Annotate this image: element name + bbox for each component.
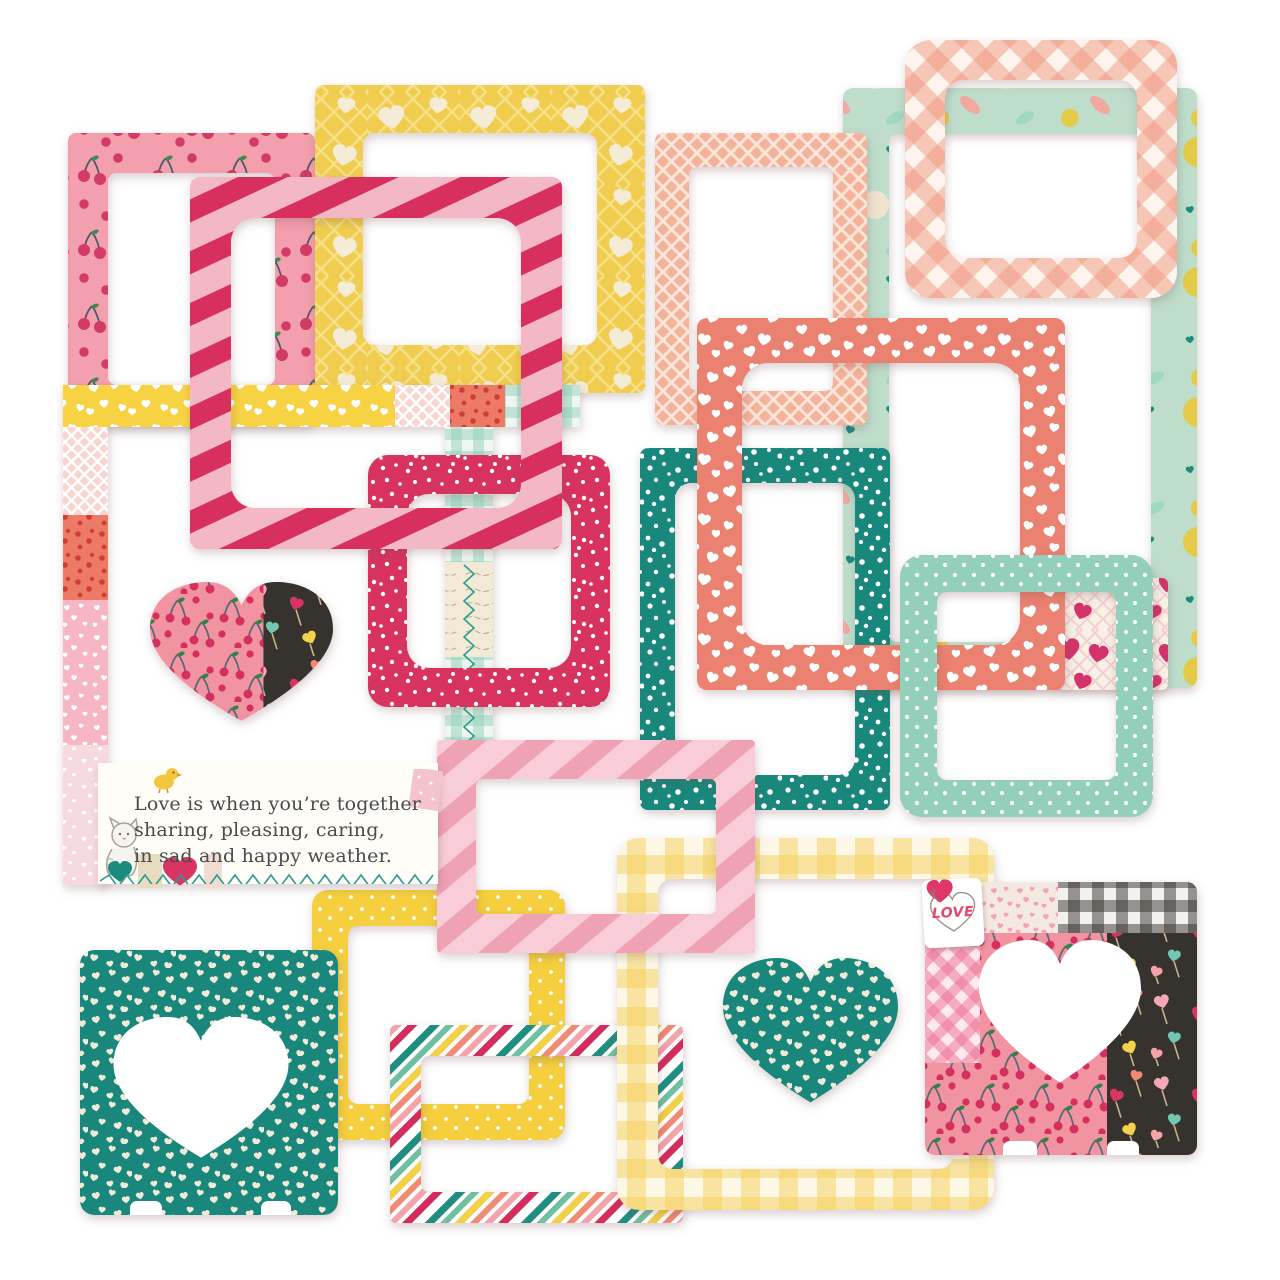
peach-lattice-frame <box>655 133 867 425</box>
quote-line-3: in sad and happy weather. <box>134 843 421 869</box>
quote-line-1: Love is when you’re together <box>134 791 421 817</box>
quote-text: Love is when you’re together sharing, pl… <box>134 791 421 870</box>
yellow-hearts-frame <box>315 85 645 393</box>
quote-line-2: sharing, pleasing, caring, <box>134 817 421 843</box>
coral-gingham-frame <box>905 40 1177 298</box>
duck-icon <box>148 765 182 793</box>
quote-card: Love is when you’re together sharing, pl… <box>98 763 438 884</box>
scrapbook-frames-product-image: Love is when you’re together sharing, pl… <box>0 0 1280 1280</box>
teal-heart-frame <box>80 950 338 1215</box>
teal-heart <box>723 958 898 1102</box>
frames-collage-scene <box>0 0 1280 1280</box>
patchwork-heart <box>150 578 339 732</box>
stitch-zigzag <box>98 872 438 884</box>
love-tag-label: LOVE <box>923 903 984 922</box>
love-tag: LOVE <box>921 877 984 948</box>
